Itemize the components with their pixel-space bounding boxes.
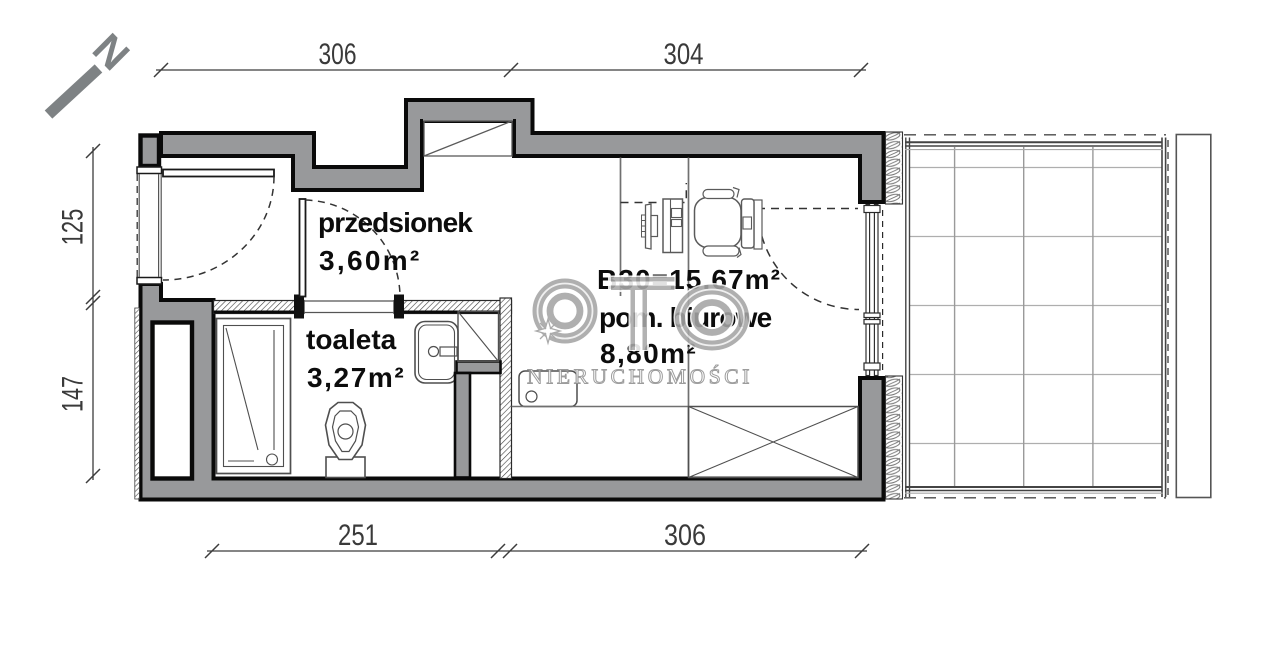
svg-text:3,60m²: 3,60m²	[319, 245, 422, 276]
svg-text:3,27m²: 3,27m²	[307, 362, 405, 393]
svg-text:306: 306	[664, 519, 706, 552]
svg-text:toaleta: toaleta	[306, 324, 397, 355]
svg-text:304: 304	[664, 38, 704, 71]
svg-text:147: 147	[57, 376, 90, 412]
svg-text:251: 251	[338, 519, 378, 552]
svg-text:306: 306	[319, 38, 357, 71]
svg-text:przedsionek: przedsionek	[318, 207, 473, 238]
svg-text:125: 125	[57, 209, 90, 246]
svg-text:NIERUCHOMOŚCI: NIERUCHOMOŚCI	[527, 365, 753, 389]
